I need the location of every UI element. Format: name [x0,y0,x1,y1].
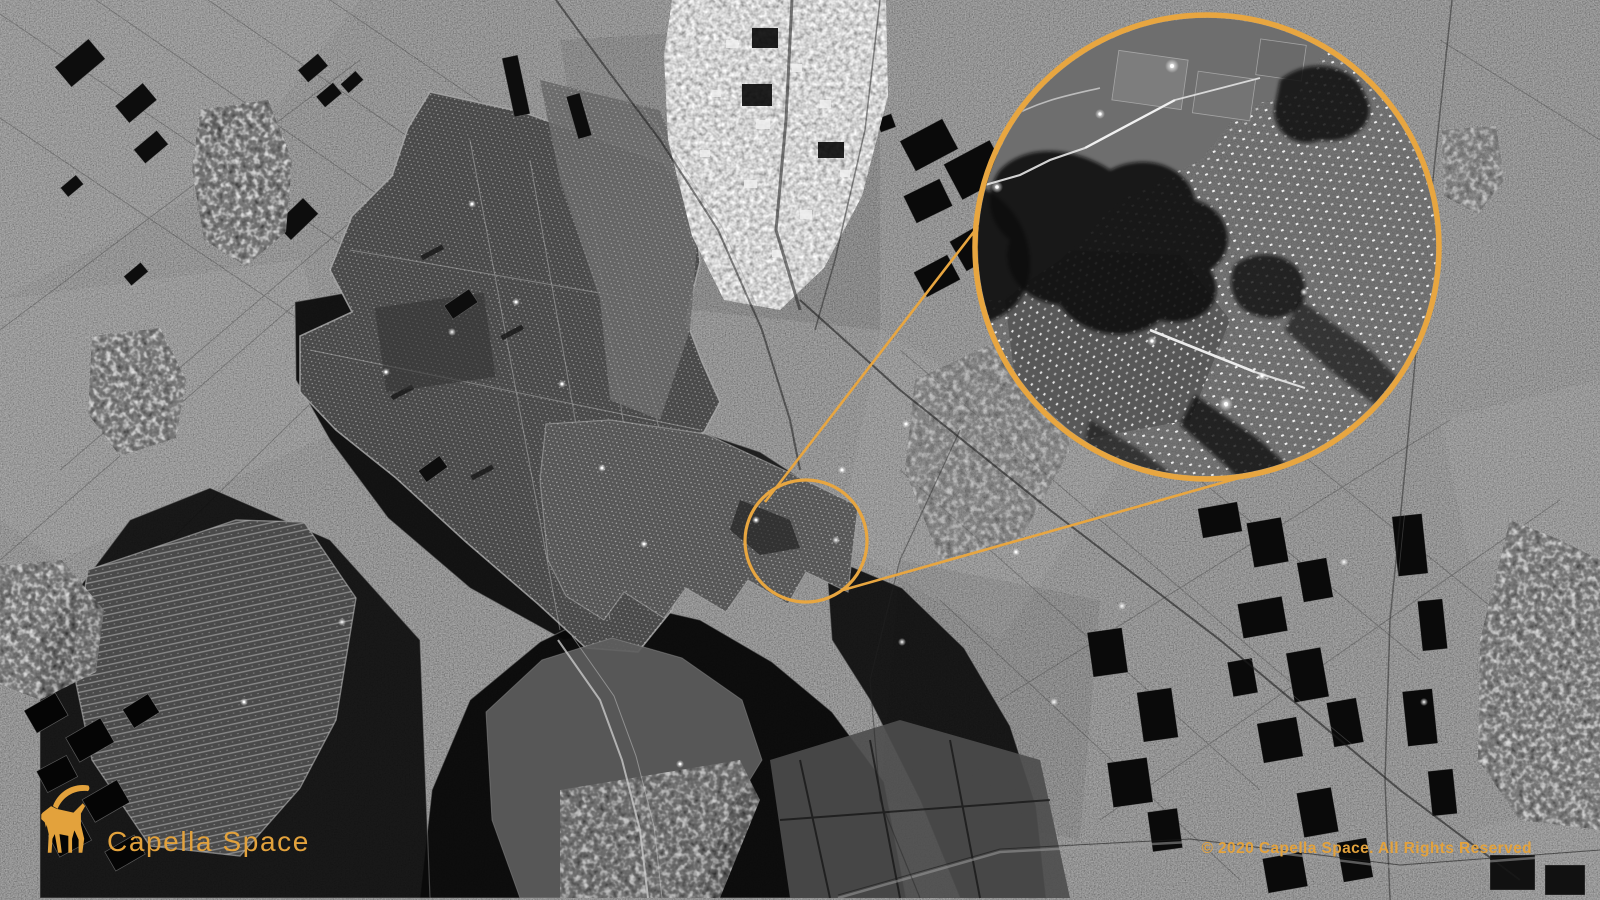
capella-ibex-icon [38,782,94,860]
brand-logo: Capella Space [38,782,310,860]
brand-name: Capella Space [107,828,310,856]
copyright-text: © 2020 Capella Space. All Rights Reserve… [1202,840,1533,858]
sar-scene [0,0,1600,900]
sar-satellite-screenshot: Capella Space © 2020 Capella Space. All … [0,0,1600,900]
